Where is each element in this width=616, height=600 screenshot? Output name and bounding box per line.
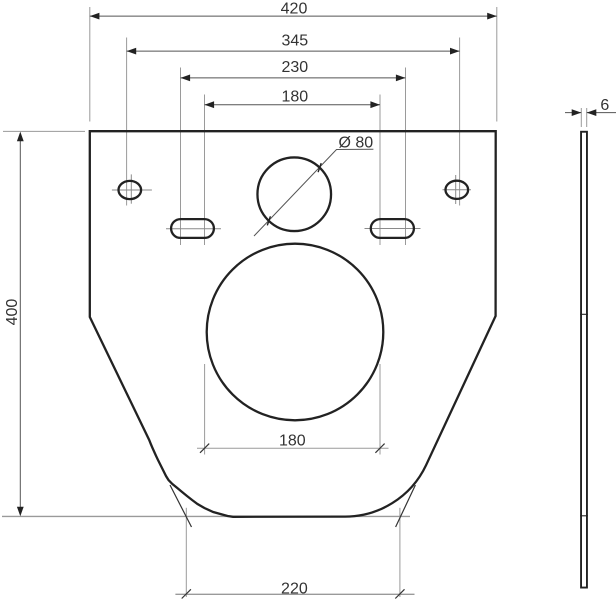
svg-text:230: 230: [281, 59, 308, 76]
svg-text:180: 180: [279, 432, 306, 449]
svg-text:420: 420: [281, 1, 308, 18]
svg-text:Ø 80: Ø 80: [339, 134, 374, 151]
svg-text:400: 400: [4, 299, 21, 326]
svg-text:6: 6: [600, 97, 609, 114]
svg-text:180: 180: [281, 89, 308, 106]
svg-text:220: 220: [281, 580, 308, 597]
svg-text:345: 345: [281, 33, 308, 50]
